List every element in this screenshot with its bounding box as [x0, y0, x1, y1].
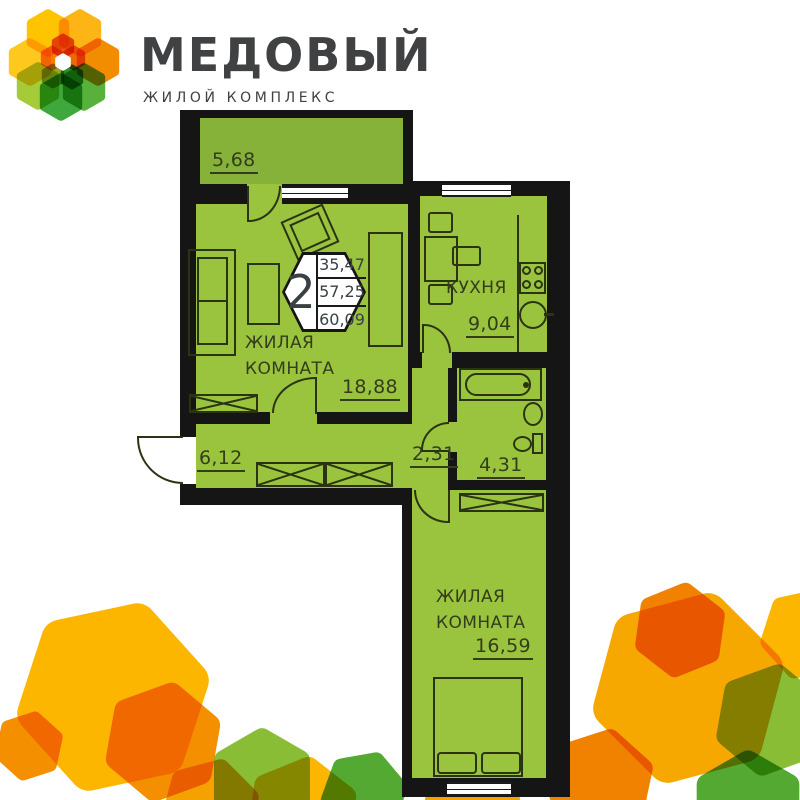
doorway-kitchen: [422, 352, 452, 368]
kitchen-label: КУХНЯ: [446, 275, 507, 301]
apartment-badge: 2 35,47 57,25 60,09: [282, 252, 366, 332]
balcony-area-label: 5,68: [210, 150, 258, 174]
kitchen-chair-top: [428, 212, 453, 233]
window-kitchen: [442, 183, 511, 197]
cabinet: [368, 232, 403, 347]
wardrobe-hall-2: [325, 462, 393, 487]
corridor-area-label: 2,31: [410, 444, 458, 468]
bedroom-label-line2: КОМНАТА: [436, 610, 525, 636]
kitchen-area-label: 9,04: [466, 314, 514, 338]
armchair-seat: [289, 212, 330, 252]
stove-burner-3: [522, 280, 531, 289]
badge-room-count: 2: [287, 252, 315, 332]
stove-burner-4: [534, 280, 543, 289]
logo-honeycomb-icon: [8, 2, 120, 122]
badge-area-living: 35,47: [318, 252, 366, 279]
wardrobe-hall-1: [256, 462, 325, 487]
badge-area-apartment: 57,25: [318, 279, 366, 306]
wardrobe-bedroom: [459, 493, 544, 512]
stove-burner-2: [534, 266, 543, 275]
page: МЕДОВЫЙ ЖИЛОЙ КОМПЛЕКС: [0, 0, 800, 800]
bathtub-basin: [465, 373, 531, 396]
bedroom-label-line1: ЖИЛАЯ: [436, 584, 525, 610]
bed-pillow-2: [481, 752, 521, 774]
wardrobe-living: [189, 394, 258, 413]
bathroom-sink: [523, 402, 543, 426]
badge-area-total: 60,09: [318, 307, 366, 332]
kitchen-sink-tap: [544, 313, 554, 316]
bed-pillow-1: [437, 752, 477, 774]
brand-subtitle: ЖИЛОЙ КОМПЛЕКС: [143, 90, 338, 106]
sofa-divider: [197, 300, 228, 302]
bathtub-drain: [523, 382, 529, 388]
toilet-tank: [532, 433, 543, 454]
toilet-bowl: [513, 436, 532, 452]
kitchen-chair-right: [452, 246, 481, 266]
doorway-living: [270, 412, 317, 424]
hallway-area-label: 6,12: [197, 448, 245, 472]
window-bedroom: [447, 782, 511, 796]
bedroom-label: ЖИЛАЯ КОМНАТА: [436, 584, 525, 636]
side-table: [247, 263, 280, 325]
living-room-label-line1: ЖИЛАЯ: [245, 330, 334, 356]
window-balcony: [282, 186, 348, 200]
brand-title: МЕДОВЫЙ: [140, 28, 433, 82]
living-area-label: 18,88: [340, 377, 400, 401]
living-room-label-line2: КОМНАТА: [245, 356, 334, 382]
bathroom-area-label: 4,31: [477, 455, 525, 479]
door-leaf-bedroom: [448, 490, 450, 523]
hexagon-decoration-right: [556, 588, 800, 800]
stove-burner-1: [522, 266, 531, 275]
bedroom-area-label: 16,59: [473, 636, 533, 660]
badge-areas: 35,47 57,25 60,09: [318, 252, 366, 332]
kitchen-sink: [519, 301, 547, 329]
living-room-label: ЖИЛАЯ КОМНАТА: [245, 330, 334, 382]
